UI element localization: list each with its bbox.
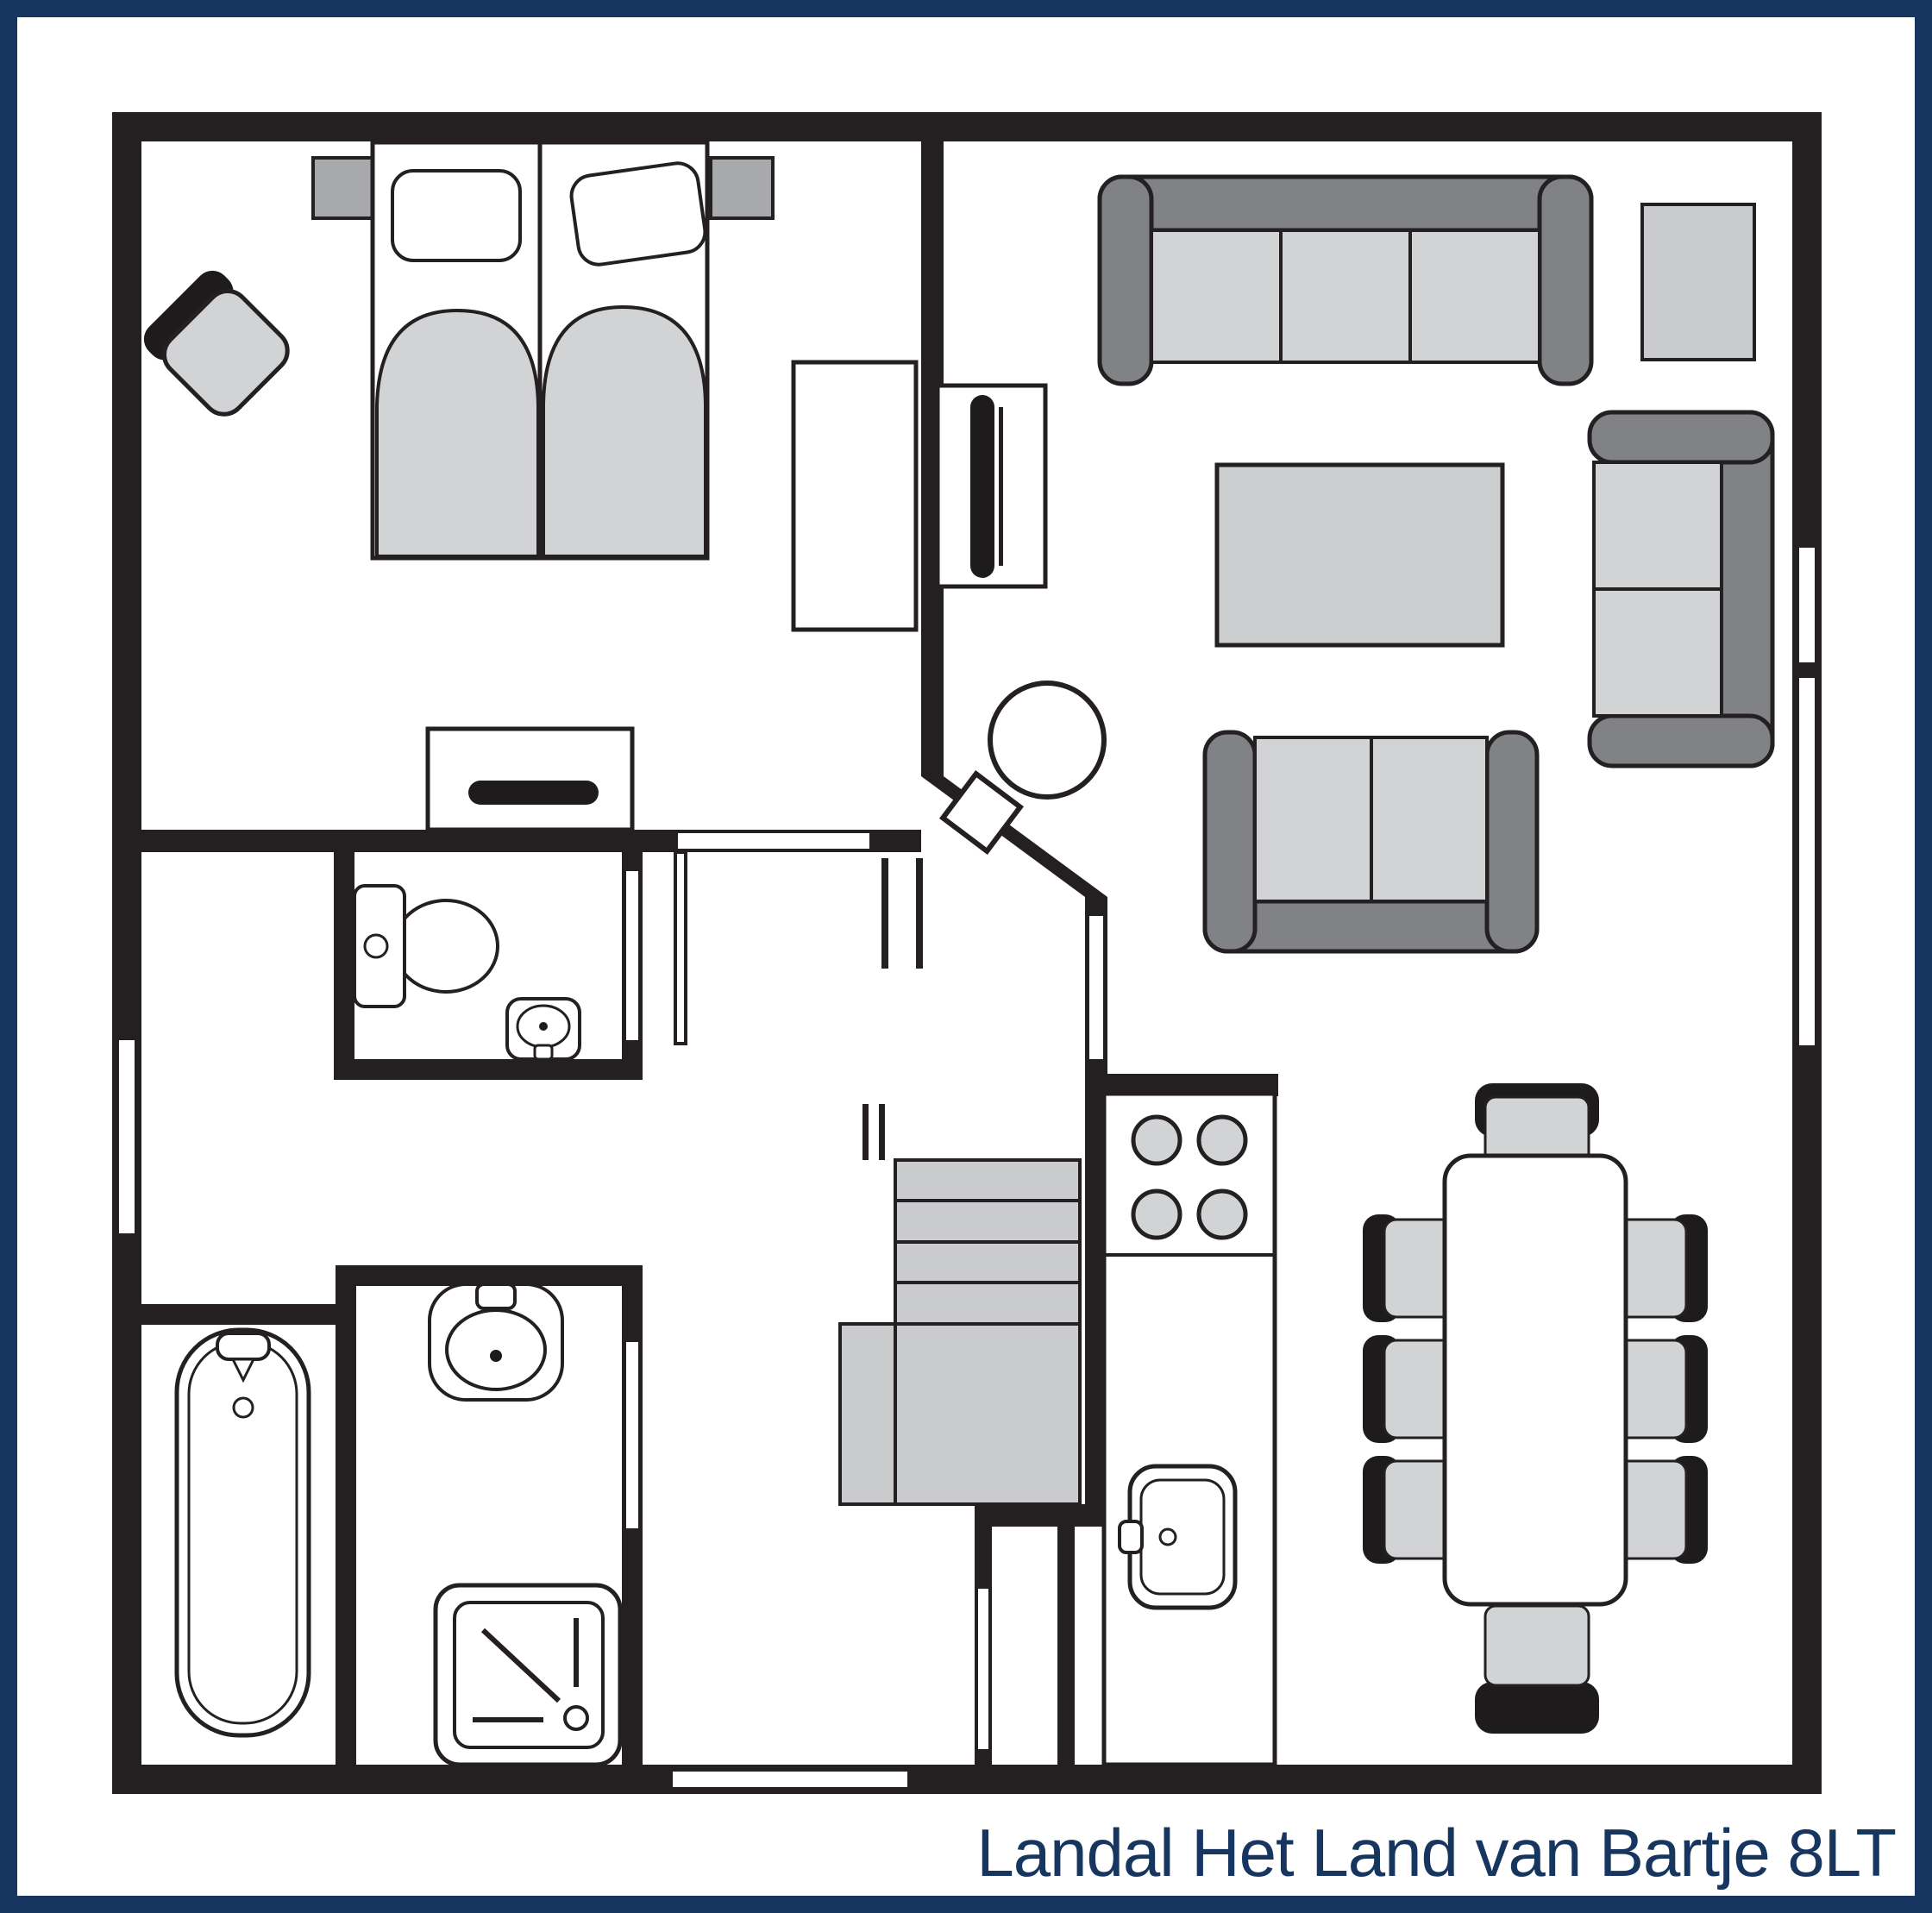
wall-closet-top bbox=[975, 1504, 1107, 1527]
burner bbox=[1133, 1191, 1180, 1238]
wardrobe-icon bbox=[793, 362, 916, 630]
window-icon bbox=[1799, 548, 1815, 662]
pillow-icon bbox=[392, 171, 520, 260]
wall-top bbox=[112, 112, 1822, 141]
sofa-arm bbox=[1590, 716, 1772, 766]
door-icon bbox=[626, 871, 638, 1040]
window-icon bbox=[673, 1772, 907, 1787]
sofa-cushion bbox=[1594, 462, 1722, 589]
duvet-icon bbox=[543, 307, 706, 556]
kitchen bbox=[1104, 1094, 1275, 1765]
dresser-icon bbox=[428, 729, 632, 830]
toilet-room bbox=[354, 886, 580, 1059]
sofa-arm bbox=[1487, 732, 1537, 951]
bathtub-drain bbox=[234, 1398, 253, 1417]
sink-inner bbox=[1141, 1480, 1224, 1594]
toilet-flush bbox=[365, 935, 387, 957]
sofa-cushion bbox=[1410, 230, 1540, 362]
dining-area bbox=[1363, 1083, 1708, 1734]
sofa-2seat-icon bbox=[1205, 732, 1537, 951]
wall-bottom bbox=[112, 1765, 1822, 1794]
bathroom bbox=[177, 1284, 620, 1765]
nightstand-icon bbox=[711, 158, 773, 218]
door-icon bbox=[1089, 916, 1103, 1059]
wall-toilet-left bbox=[334, 852, 354, 1059]
basin-tap bbox=[535, 1045, 552, 1059]
sofa-cushion bbox=[1594, 589, 1722, 716]
door-icon bbox=[978, 1589, 988, 1749]
washbasin-icon bbox=[430, 1284, 562, 1400]
wall-tubroom-top bbox=[141, 1304, 356, 1325]
passage-jamb bbox=[916, 858, 923, 969]
plan-caption: Landal Het Land van Bartje 8LT bbox=[976, 1816, 1896, 1891]
sink-tap bbox=[1120, 1521, 1142, 1552]
stairs-side-block bbox=[840, 1324, 895, 1504]
wall-left bbox=[112, 112, 141, 1794]
sofa-2seat-icon bbox=[1590, 412, 1772, 766]
passage-jamb bbox=[862, 1104, 869, 1160]
passage-jamb bbox=[879, 1104, 885, 1160]
burner bbox=[1199, 1117, 1245, 1163]
side-table-icon bbox=[1642, 204, 1754, 360]
dining-chair-icon bbox=[1475, 1682, 1599, 1734]
kitchen-counter-icon bbox=[1104, 1094, 1275, 1765]
sofa-cushion bbox=[1151, 230, 1281, 362]
chair-icon bbox=[137, 264, 298, 425]
nightstand-icon bbox=[313, 158, 373, 218]
coffee-table-icon bbox=[1217, 465, 1502, 645]
sofa-3seat-icon bbox=[1100, 177, 1591, 384]
washbasin-tap bbox=[477, 1284, 515, 1308]
floor-plan-drawing bbox=[0, 0, 1932, 1913]
tv-icon bbox=[970, 395, 994, 578]
wood-stove-icon bbox=[943, 683, 1104, 851]
tv-screen-line bbox=[999, 407, 1003, 566]
window-icon bbox=[119, 1040, 135, 1233]
dining-table-icon bbox=[1445, 1156, 1626, 1604]
duvet-icon bbox=[377, 310, 538, 556]
stairs-icon bbox=[840, 1160, 1080, 1504]
door-icon bbox=[626, 1342, 638, 1528]
passage-jamb bbox=[881, 858, 888, 969]
sofa-cushion bbox=[1255, 737, 1371, 901]
sofa-cushion bbox=[1281, 230, 1410, 362]
wall-toilet-bottom bbox=[334, 1059, 643, 1080]
floor-plan: Landal Het Land van Bartje 8LT bbox=[0, 0, 1932, 1913]
burner bbox=[1199, 1191, 1245, 1238]
sink-drain bbox=[1160, 1529, 1176, 1545]
bedroom bbox=[137, 142, 916, 830]
sofa-arm bbox=[1590, 412, 1772, 462]
washbasin-drain bbox=[490, 1350, 502, 1362]
window-icon bbox=[1799, 678, 1815, 1045]
sofa-arm bbox=[1100, 177, 1151, 384]
bathtub-icon bbox=[177, 1330, 309, 1735]
wall-closet-right bbox=[1057, 1527, 1075, 1765]
dining-chair-seat bbox=[1485, 1606, 1589, 1685]
hand-basin-icon bbox=[507, 999, 580, 1059]
sofa-arm bbox=[1205, 732, 1255, 951]
wall-bathroom-divider bbox=[336, 1286, 356, 1765]
sofa-back bbox=[1100, 177, 1591, 230]
shower-drain bbox=[565, 1707, 587, 1729]
stove-body bbox=[990, 683, 1104, 797]
door-leaf bbox=[675, 852, 686, 1044]
kitchen-sink-icon bbox=[1120, 1466, 1235, 1608]
sofa-cushion bbox=[1371, 737, 1487, 901]
door-icon bbox=[678, 833, 869, 849]
bathtub-tap bbox=[217, 1333, 269, 1359]
toilet-icon bbox=[394, 900, 498, 992]
dresser-handle bbox=[468, 781, 599, 805]
pillow-icon bbox=[568, 160, 707, 267]
sofa-arm bbox=[1540, 177, 1591, 384]
burner bbox=[1133, 1117, 1180, 1163]
basin-drain bbox=[539, 1022, 548, 1031]
stairs-landing bbox=[895, 1324, 1080, 1504]
wall-diagonal bbox=[921, 776, 1107, 897]
shower-icon bbox=[436, 1585, 620, 1765]
living-room bbox=[938, 177, 1772, 951]
sofa-back bbox=[1721, 412, 1772, 766]
